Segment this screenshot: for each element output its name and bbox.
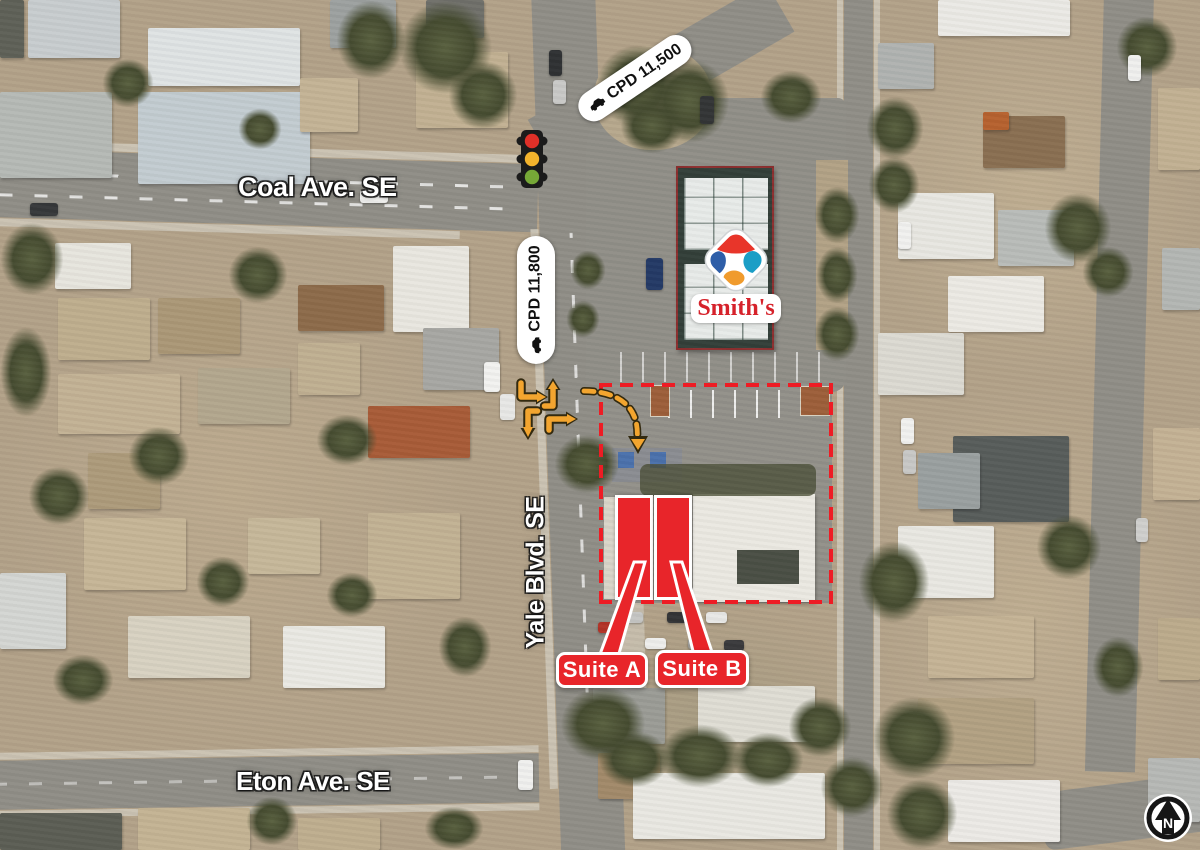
smiths-logo-icon (686, 226, 786, 298)
property-boundary (829, 383, 833, 604)
street-label-eton: Eton Ave. SE (236, 766, 390, 797)
property-boundary (599, 383, 833, 387)
north-label: N (1163, 815, 1173, 831)
north-arrow-icon: N (1141, 791, 1195, 845)
car-icon (531, 337, 542, 355)
car-icon (587, 94, 608, 113)
suite-a-label: Suite A (556, 652, 648, 688)
street-label-yale: Yale Blvd. SE (522, 489, 551, 657)
traffic-count-pill-yale: CPD 11,800 (517, 236, 555, 364)
property-boundary (599, 383, 603, 604)
smiths-logo: Smith's (686, 226, 786, 323)
suite-b-label: Suite B (655, 650, 749, 688)
suite-b-highlight (654, 495, 692, 600)
property-boundary (599, 600, 833, 604)
traffic-light-icon (512, 127, 552, 193)
smiths-wordmark: Smith's (691, 294, 780, 323)
aerial-map: Coal Ave. SE Yale Blvd. SE Eton Ave. SE … (0, 0, 1200, 850)
street-label-coal: Coal Ave. SE (238, 172, 397, 203)
suite-a-highlight (615, 495, 653, 600)
traffic-count-label: CPD 11,800 (527, 245, 545, 331)
